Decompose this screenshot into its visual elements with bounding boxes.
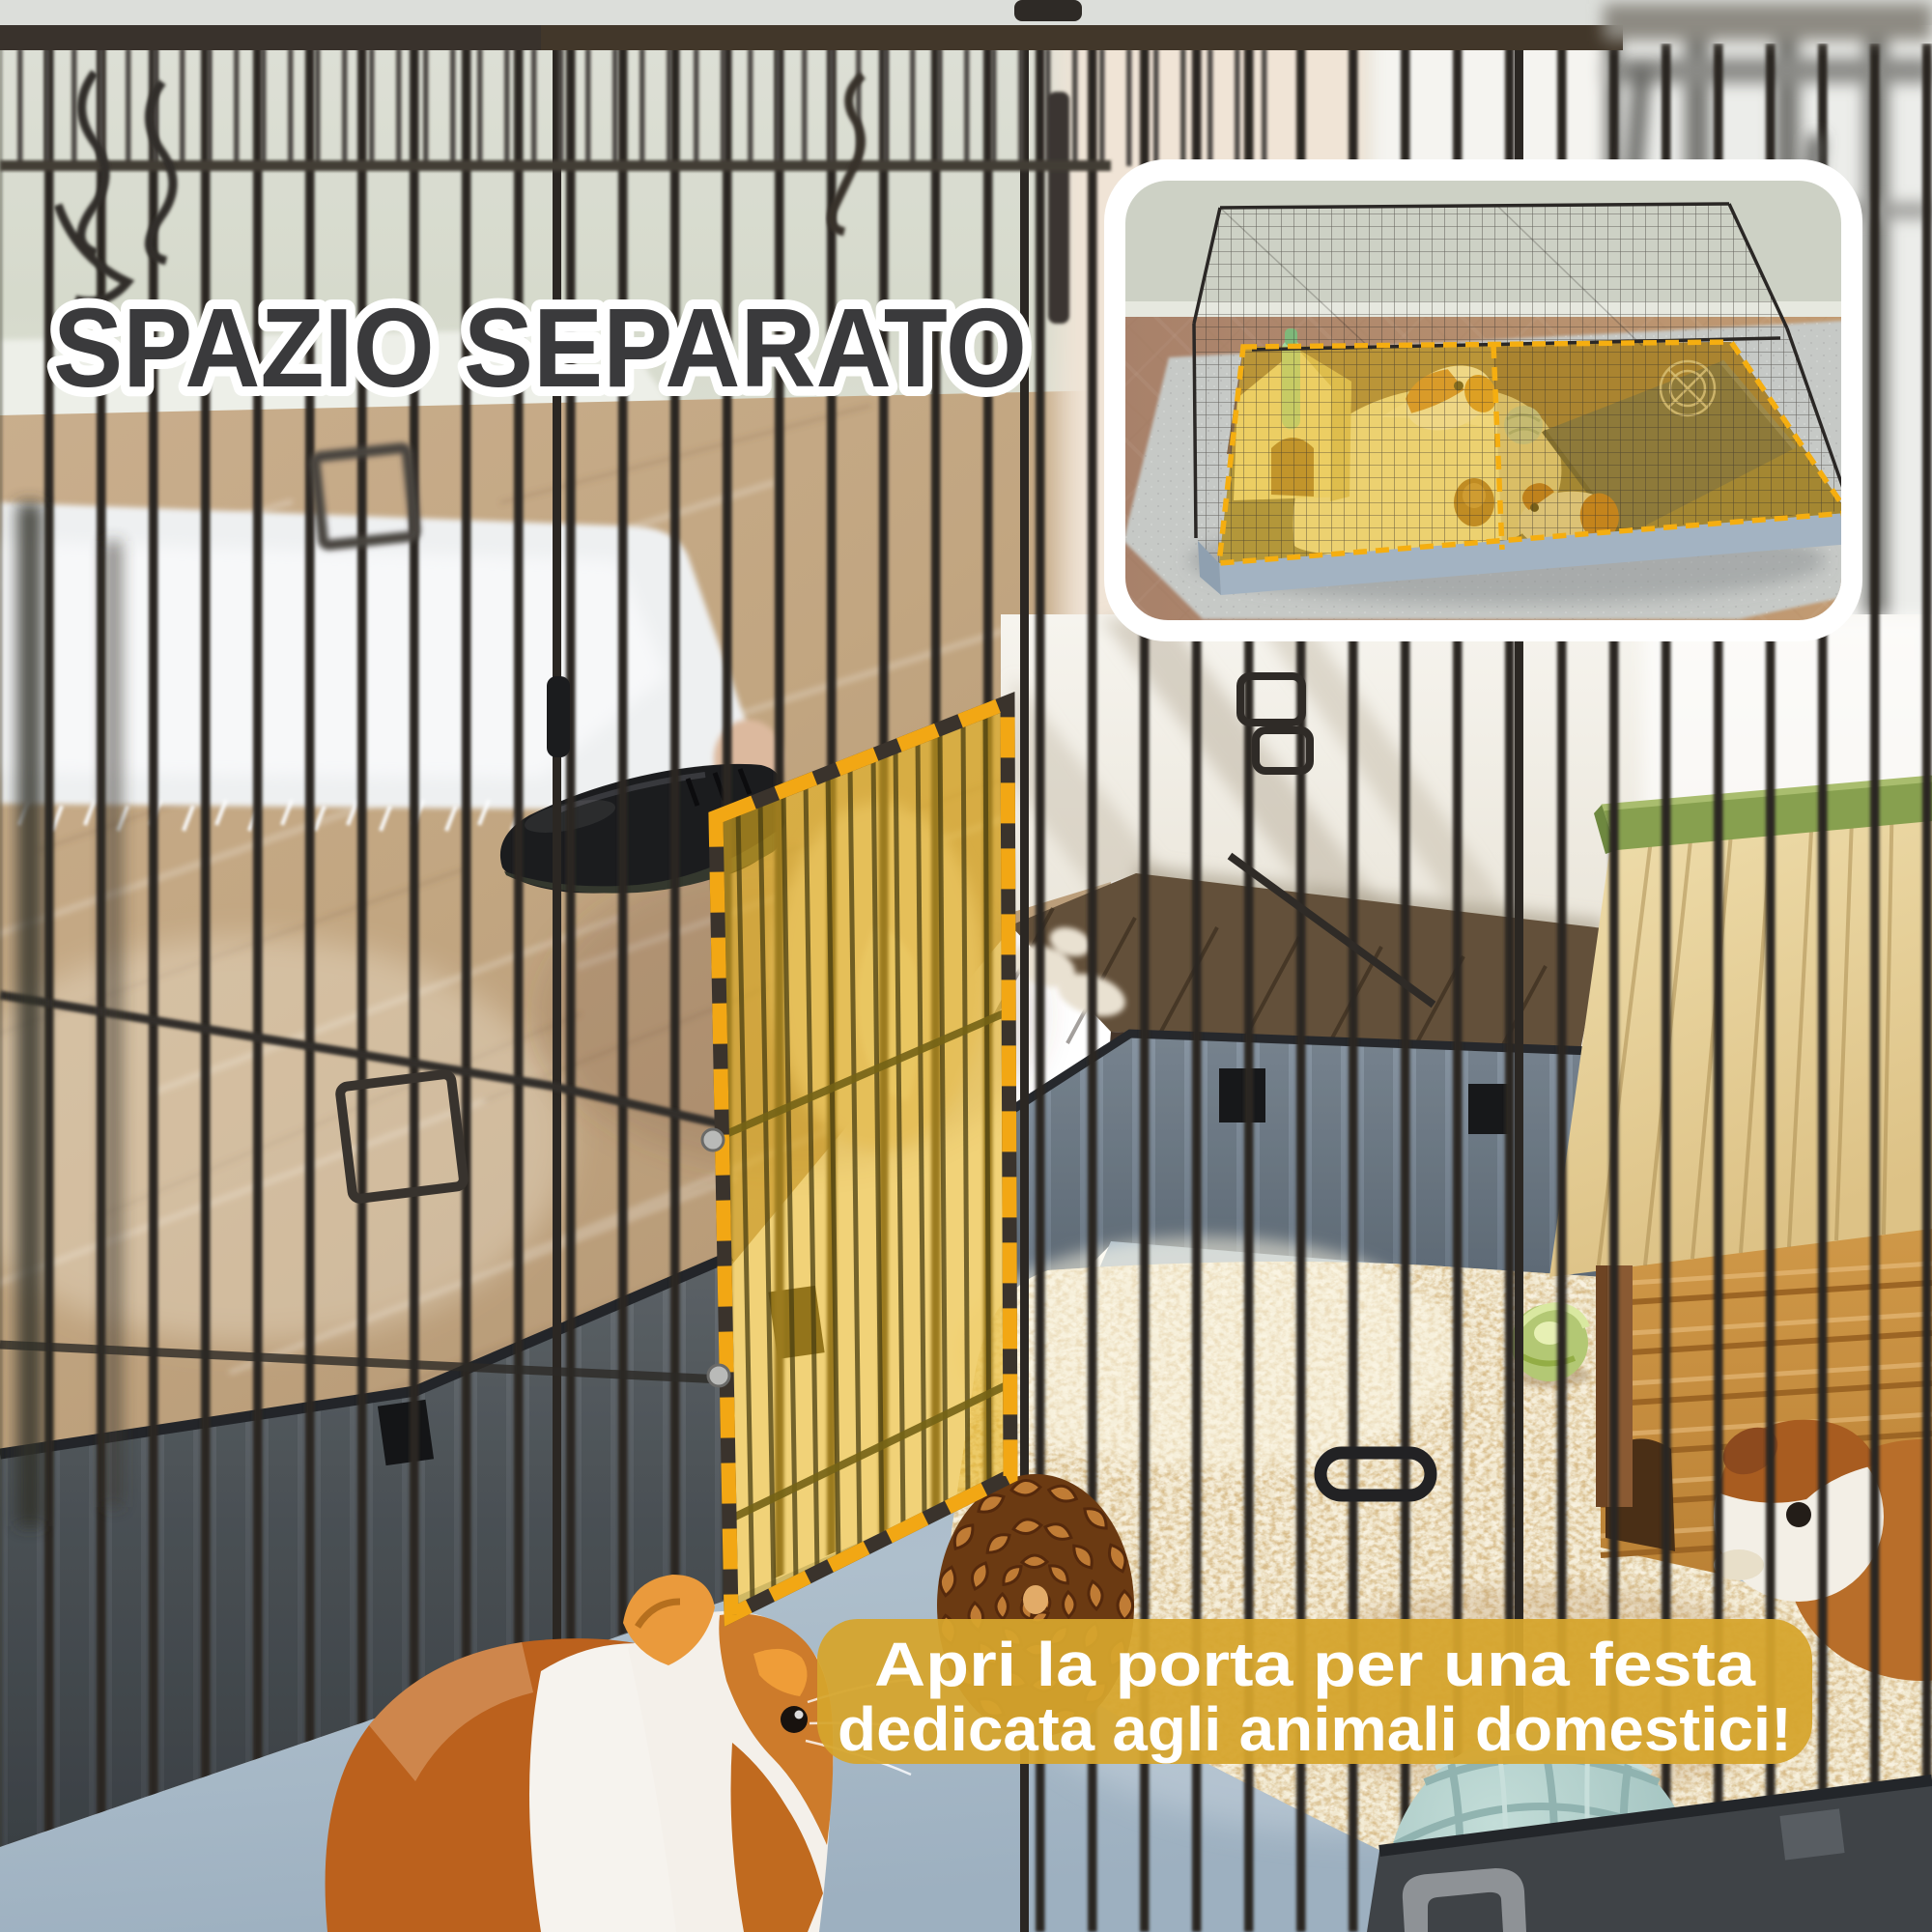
svg-text:Apri la porta per una festa: Apri la porta per una festa [874,1630,1755,1699]
svg-text:dedicata agli animali domestic: dedicata agli animali domestici! [838,1694,1792,1764]
svg-text:SPAZIO SEPARATO: SPAZIO SEPARATO [53,285,1027,411]
